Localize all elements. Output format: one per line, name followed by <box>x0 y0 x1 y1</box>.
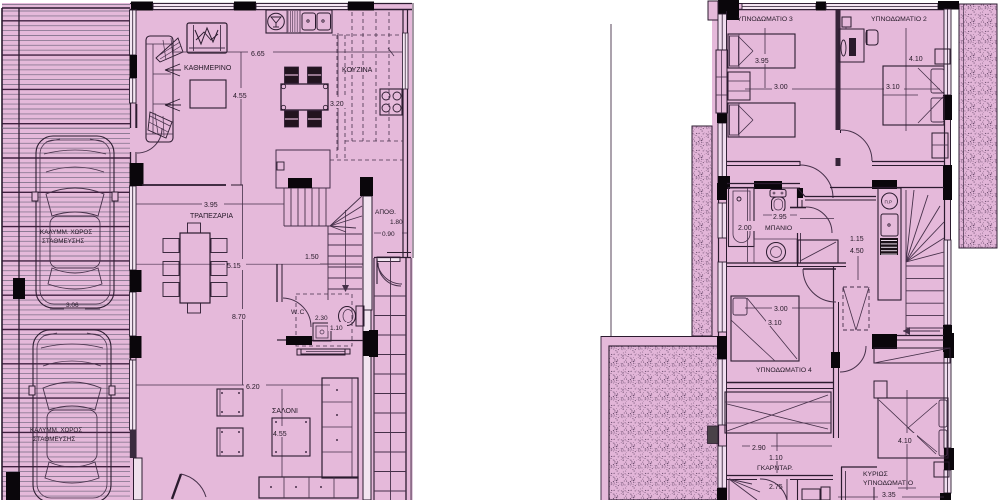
svg-text:4.10: 4.10 <box>909 56 923 63</box>
svg-text:ΣΤΑΘΜΕΥΣΗΣ: ΣΤΑΘΜΕΥΣΗΣ <box>33 436 75 443</box>
svg-text:3.20: 3.20 <box>330 101 344 108</box>
svg-text:ΜΠΑΝΙΟ: ΜΠΑΝΙΟ <box>765 225 792 232</box>
svg-text:ΚΑΘΗΜΕΡΙΝΟ: ΚΑΘΗΜΕΡΙΝΟ <box>184 65 232 72</box>
svg-text:3.95: 3.95 <box>755 58 769 65</box>
svg-text:ΓΚΑΡΝΤΑΡ.: ΓΚΑΡΝΤΑΡ. <box>757 465 793 472</box>
svg-text:6.65: 6.65 <box>251 51 265 58</box>
svg-text:2.30: 2.30 <box>315 315 328 322</box>
svg-text:4.55: 4.55 <box>233 93 247 100</box>
svg-text:3.10: 3.10 <box>886 84 900 91</box>
svg-text:ΣΤΑΘΜΕΥΣΗΣ: ΣΤΑΘΜΕΥΣΗΣ <box>42 238 84 245</box>
svg-text:ΥΠΝΟΔΩΜΑΤΙΟ 3: ΥΠΝΟΔΩΜΑΤΙΟ 3 <box>737 16 793 23</box>
svg-text:ΣΑΛΟΝΙ: ΣΑΛΟΝΙ <box>272 408 298 415</box>
svg-text:ΥΠΝΟΔΩΜΑΤΙΟ 4: ΥΠΝΟΔΩΜΑΤΙΟ 4 <box>756 367 812 374</box>
svg-text:6.20: 6.20 <box>246 384 260 391</box>
svg-text:2.90: 2.90 <box>752 445 766 452</box>
svg-text:W.C: W.C <box>291 309 305 316</box>
svg-text:ΥΠΝΟΔΩΜΑΤΙΟ: ΥΠΝΟΔΩΜΑΤΙΟ <box>863 480 913 487</box>
svg-text:2.95: 2.95 <box>773 214 787 221</box>
svg-text:1.10: 1.10 <box>330 325 343 332</box>
svg-text:1.80: 1.80 <box>390 219 403 226</box>
svg-text:4.10: 4.10 <box>898 438 912 445</box>
svg-text:ΚΟΥΖΙΝΑ: ΚΟΥΖΙΝΑ <box>342 67 373 74</box>
svg-text:3.10: 3.10 <box>768 320 782 327</box>
svg-text:0.90: 0.90 <box>382 231 395 238</box>
svg-text:Π.Ρ: Π.Ρ <box>885 200 893 205</box>
svg-text:3.00: 3.00 <box>774 84 788 91</box>
svg-text:2.00: 2.00 <box>738 225 752 232</box>
svg-text:ΚΑΛΥΜΜ. ΧΩΡΟΣ: ΚΑΛΥΜΜ. ΧΩΡΟΣ <box>40 229 92 236</box>
svg-text:4.50: 4.50 <box>850 248 864 255</box>
svg-text:3.95: 3.95 <box>204 202 218 209</box>
svg-text:1.10: 1.10 <box>769 455 783 462</box>
svg-text:3.35: 3.35 <box>882 492 896 499</box>
svg-text:ΑΠΟΘ.: ΑΠΟΘ. <box>375 209 396 216</box>
svg-text:1.15: 1.15 <box>850 236 864 243</box>
svg-text:8.70: 8.70 <box>232 314 246 321</box>
svg-text:ΚΥΡΙΩΣ: ΚΥΡΙΩΣ <box>863 471 888 478</box>
svg-text:ΚΑΛΥΜΜ. ΧΩΡΟΣ: ΚΑΛΥΜΜ. ΧΩΡΟΣ <box>30 427 82 434</box>
svg-text:3.06: 3.06 <box>66 302 79 309</box>
svg-text:4.55: 4.55 <box>273 431 287 438</box>
svg-text:ΤΡΑΠΕΖΑΡΙΑ: ΤΡΑΠΕΖΑΡΙΑ <box>190 213 233 220</box>
svg-text:5.15: 5.15 <box>227 263 241 270</box>
svg-text:ΥΠΝΟΔΩΜΑΤΙΟ 2: ΥΠΝΟΔΩΜΑΤΙΟ 2 <box>871 16 927 23</box>
svg-text:3.00: 3.00 <box>774 306 788 313</box>
svg-text:1.50: 1.50 <box>305 254 319 261</box>
